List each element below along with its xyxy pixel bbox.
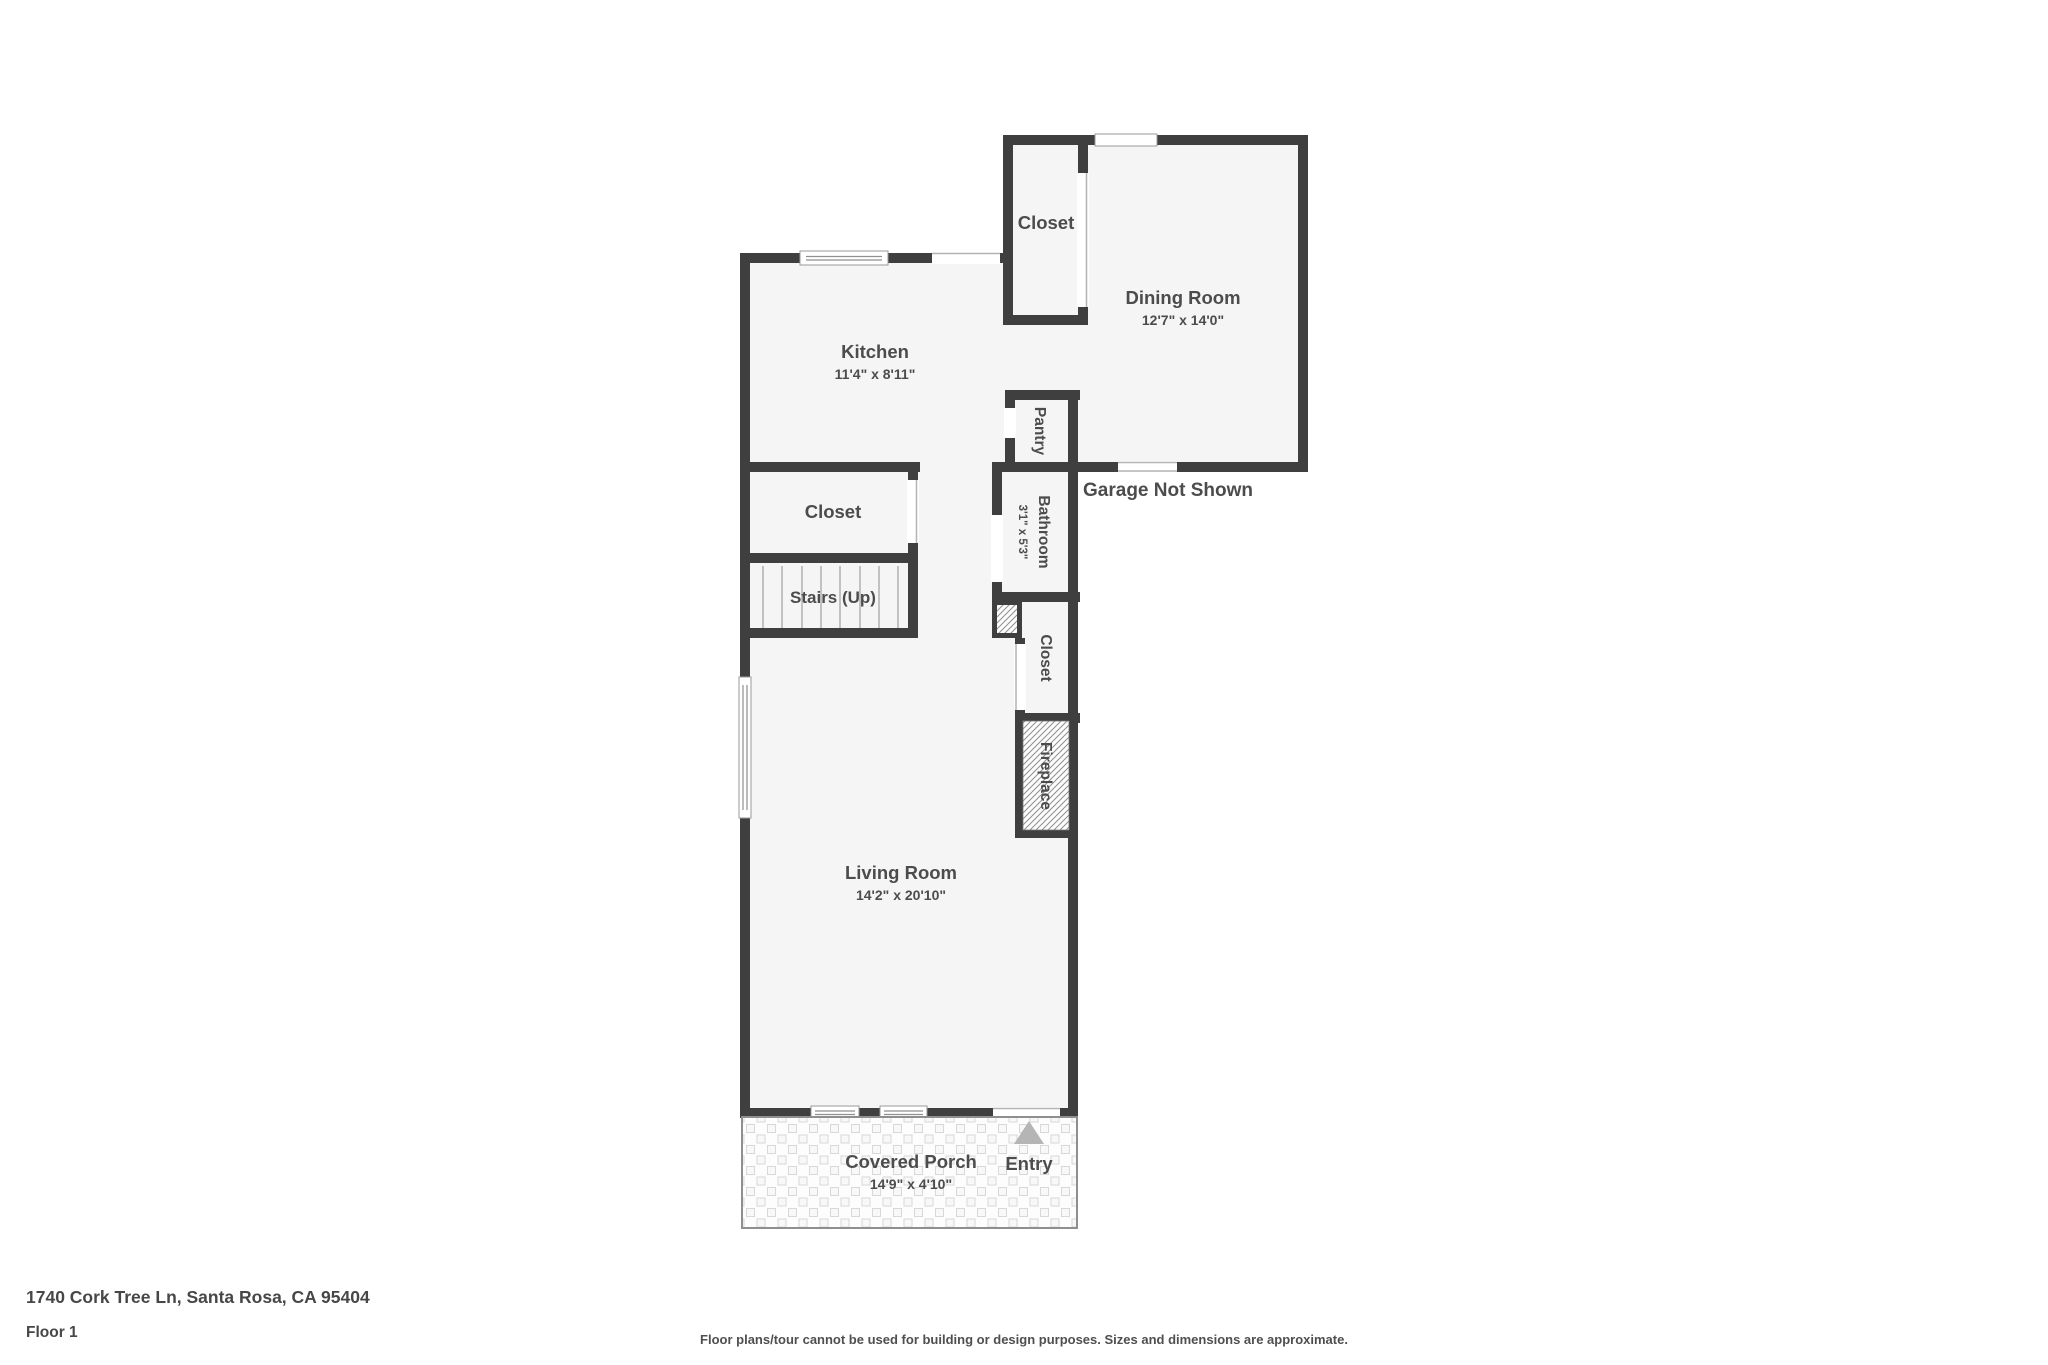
closet-top-label: Closet (1018, 212, 1075, 233)
floor-plan-svg: Kitchen 11'4" x 8'11" Dining Room 12'7" … (0, 0, 2048, 1365)
living-room-dims: 14'2" x 20'10" (856, 887, 946, 903)
footer: 1740 Cork Tree Ln, Santa Rosa, CA 95404 … (26, 1287, 1348, 1347)
covered-porch-label: Covered Porch (845, 1151, 977, 1172)
kitchen-window (800, 251, 888, 265)
address-text: 1740 Cork Tree Ln, Santa Rosa, CA 95404 (26, 1287, 370, 1307)
dining-room-dims: 12'7" x 14'0" (1142, 312, 1224, 328)
floorplan-page: Kitchen 11'4" x 8'11" Dining Room 12'7" … (0, 0, 2048, 1365)
living-room-label: Living Room (845, 862, 957, 883)
dining-room-label: Dining Room (1125, 287, 1240, 308)
closet-right-label: Closet (1037, 634, 1054, 681)
room-floors (745, 140, 1303, 1113)
stairs-label: Stairs (Up) (790, 588, 876, 607)
pantry-label: Pantry (1031, 407, 1048, 456)
disclaimer-text: Floor plans/tour cannot be used for buil… (700, 1332, 1348, 1347)
fireplace-label: Fireplace (1037, 742, 1054, 810)
dining-window (1095, 134, 1157, 146)
bathroom-dims: 3'1" x 5'3" (1016, 505, 1028, 560)
garage-note: Garage Not Shown (1083, 480, 1253, 501)
living-left-window (739, 677, 751, 818)
floor-number: Floor 1 (26, 1324, 78, 1341)
covered-porch-dims: 14'9" x 4'10" (870, 1176, 952, 1192)
kitchen-label: Kitchen (841, 341, 909, 362)
closet-left-label: Closet (805, 501, 862, 522)
bathroom-label: Bathroom (1035, 495, 1052, 568)
chase-box (992, 600, 1022, 638)
entry-label: Entry (1005, 1153, 1053, 1174)
kitchen-dims: 11'4" x 8'11" (835, 366, 916, 382)
